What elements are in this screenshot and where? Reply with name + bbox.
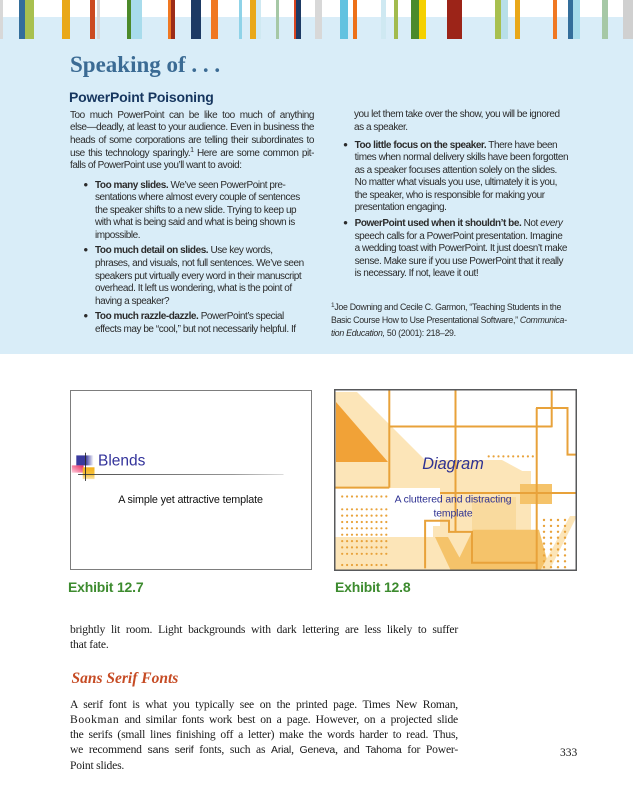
svg-text:A cluttered and distracting: A cluttered and distracting — [395, 495, 512, 506]
svg-text:A simple yet attractive templa: A simple yet attractive template — [118, 494, 263, 506]
svg-text:Diagram: Diagram — [422, 455, 484, 473]
svg-text:Blends: Blends — [98, 452, 146, 469]
svg-text:template: template — [433, 509, 472, 520]
